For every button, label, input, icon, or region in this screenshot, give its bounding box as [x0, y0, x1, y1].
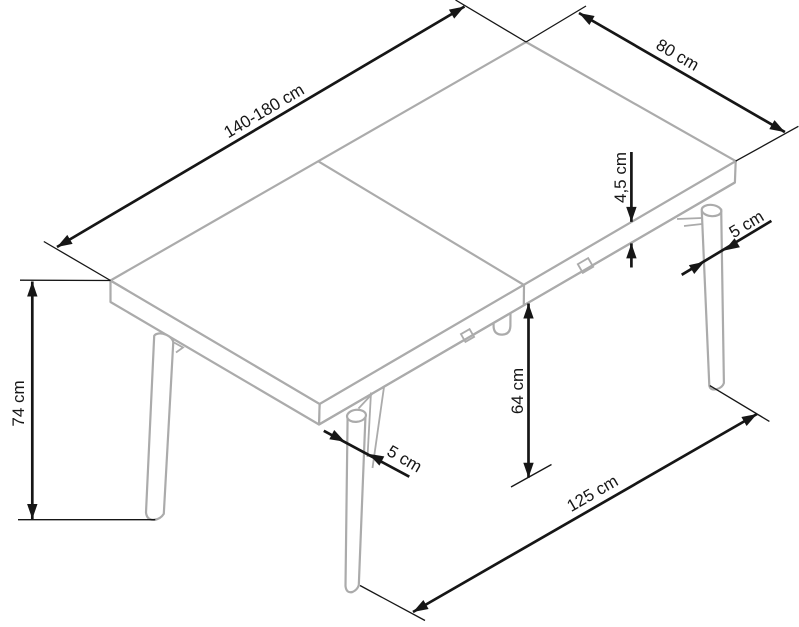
svg-text:74 cm: 74 cm	[9, 380, 28, 426]
svg-text:4,5 cm: 4,5 cm	[611, 152, 630, 203]
svg-text:64 cm: 64 cm	[508, 368, 527, 414]
